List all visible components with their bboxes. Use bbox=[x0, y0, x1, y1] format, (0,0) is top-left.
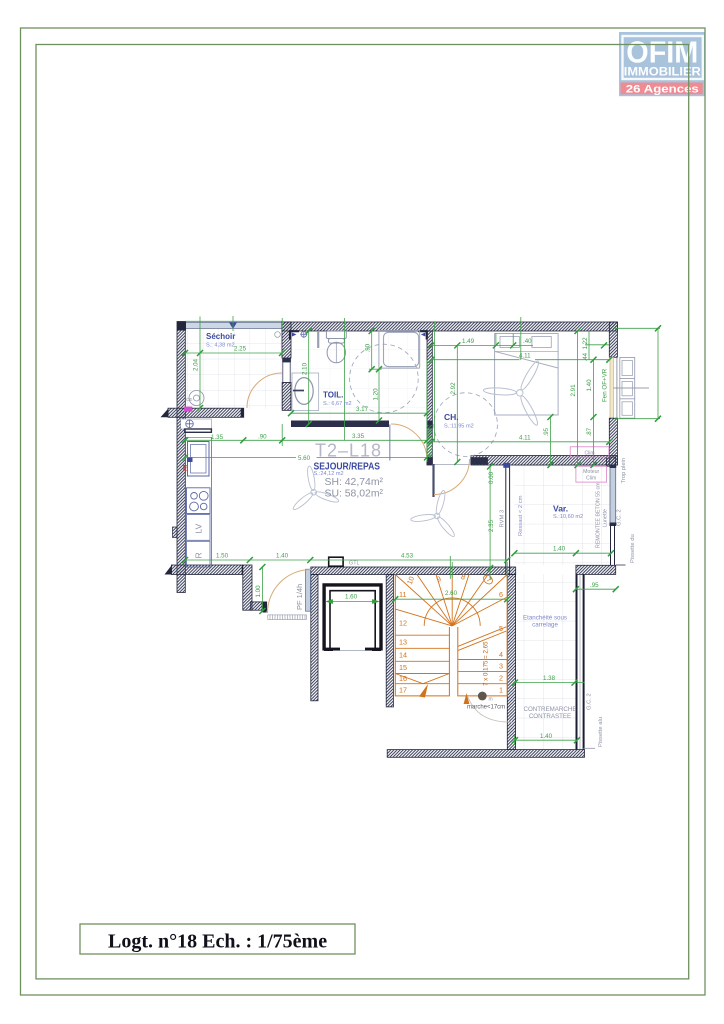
svg-text:1: 1 bbox=[499, 686, 503, 695]
svg-text:CE: CE bbox=[186, 397, 192, 402]
svg-text:RVM 3: RVM 3 bbox=[500, 510, 506, 528]
svg-text:S.:10,60 m2: S.:10,60 m2 bbox=[553, 514, 583, 520]
svg-text:Pissette alu: Pissette alu bbox=[598, 717, 604, 747]
svg-text:0.00: 0.00 bbox=[488, 471, 495, 484]
svg-text:26 Agences: 26 Agences bbox=[626, 84, 699, 96]
svg-text:Clim: Clim bbox=[585, 451, 595, 457]
svg-text:1.38: 1.38 bbox=[543, 675, 556, 682]
svg-text:Clim: Clim bbox=[586, 476, 596, 482]
svg-text:1.22: 1.22 bbox=[582, 337, 589, 350]
svg-text:.95: .95 bbox=[543, 427, 550, 436]
svg-text:TOIL.: TOIL. bbox=[323, 391, 343, 400]
svg-text:14: 14 bbox=[399, 651, 407, 660]
svg-text:SU: 58,02m²: SU: 58,02m² bbox=[325, 489, 384, 500]
svg-text:2.10: 2.10 bbox=[302, 362, 309, 375]
svg-text:Moteur: Moteur bbox=[583, 469, 599, 475]
svg-text:2.04: 2.04 bbox=[193, 358, 200, 371]
svg-text:1.35: 1.35 bbox=[211, 434, 224, 441]
svg-text:REMONTEE BETON 55 cm: REMONTEE BETON 55 cm bbox=[596, 482, 602, 548]
svg-text:Lunette: Lunette bbox=[603, 509, 609, 527]
svg-text:GTL: GTL bbox=[349, 561, 359, 567]
svg-text:E: E bbox=[183, 464, 188, 473]
svg-text:carrelage: carrelage bbox=[532, 622, 558, 629]
svg-text:1.50: 1.50 bbox=[216, 553, 229, 560]
svg-text:LV: LV bbox=[194, 523, 204, 533]
svg-text:Logt. n°18 Ech. : 1/75ème: Logt. n°18 Ech. : 1/75ème bbox=[108, 931, 327, 953]
svg-text:.87: .87 bbox=[586, 427, 593, 436]
svg-text:1.40: 1.40 bbox=[276, 553, 289, 560]
svg-text:Pissette du: Pissette du bbox=[630, 534, 636, 563]
svg-text:4: 4 bbox=[499, 650, 503, 659]
svg-text:T2–L18: T2–L18 bbox=[315, 441, 382, 461]
svg-text:2.25: 2.25 bbox=[234, 346, 247, 353]
svg-text:3.17: 3.17 bbox=[356, 406, 369, 413]
svg-text:Trop plein: Trop plein bbox=[621, 458, 627, 484]
svg-text:Séchoir: Séchoir bbox=[206, 332, 235, 341]
svg-text:.40: .40 bbox=[523, 338, 532, 345]
svg-text:12: 12 bbox=[399, 619, 407, 628]
svg-text:Fen OF+VR: Fen OF+VR bbox=[602, 368, 609, 402]
svg-text:2.91: 2.91 bbox=[570, 384, 577, 397]
svg-text:2.60: 2.60 bbox=[445, 590, 458, 597]
svg-text:6: 6 bbox=[499, 590, 503, 599]
svg-text:5.60: 5.60 bbox=[298, 455, 311, 462]
svg-text:CH.: CH. bbox=[444, 412, 459, 422]
svg-text:.95: .95 bbox=[590, 582, 599, 589]
svg-text:15: 15 bbox=[399, 663, 407, 672]
svg-text:.90: .90 bbox=[365, 343, 372, 352]
svg-text:m: m bbox=[489, 697, 493, 703]
svg-text:marche<17cm: marche<17cm bbox=[467, 705, 505, 711]
svg-text:5: 5 bbox=[499, 624, 503, 633]
svg-text:4.11: 4.11 bbox=[519, 434, 531, 441]
svg-text:Ressaut < 2 cm: Ressaut < 2 cm bbox=[518, 495, 524, 536]
svg-text:1.00: 1.00 bbox=[255, 585, 262, 598]
svg-text:CONTRASTEE: CONTRASTEE bbox=[529, 713, 571, 720]
svg-text:17: 17 bbox=[399, 686, 407, 695]
svg-text:PF 1/4h: PF 1/4h bbox=[295, 584, 304, 610]
svg-text:.90: .90 bbox=[258, 433, 267, 440]
svg-text:1.60: 1.60 bbox=[345, 594, 358, 601]
svg-text:CONTREMARCHE: CONTREMARCHE bbox=[524, 706, 577, 713]
svg-text:1.40: 1.40 bbox=[586, 379, 593, 392]
svg-text:2.35: 2.35 bbox=[488, 519, 495, 532]
svg-text:4.11: 4.11 bbox=[519, 352, 531, 359]
svg-text:11: 11 bbox=[399, 590, 406, 599]
svg-text:.44: .44 bbox=[582, 352, 589, 361]
svg-text:G.C. 2: G.C. 2 bbox=[587, 693, 593, 710]
svg-text:4.53: 4.53 bbox=[401, 553, 414, 560]
svg-text:13: 13 bbox=[399, 638, 407, 647]
svg-text:2: 2 bbox=[499, 674, 503, 683]
svg-text:SH: 42,74m²: SH: 42,74m² bbox=[325, 477, 384, 488]
svg-text:Etanchéité sous: Etanchéité sous bbox=[523, 615, 567, 622]
svg-text:2.92: 2.92 bbox=[450, 382, 457, 395]
svg-text:R: R bbox=[194, 552, 204, 558]
svg-text:S.: 6,67 m2: S.: 6,67 m2 bbox=[323, 401, 352, 407]
svg-text:16: 16 bbox=[399, 674, 407, 683]
svg-text:7 x 0,175 = 2,65: 7 x 0,175 = 2,65 bbox=[483, 641, 490, 686]
svg-text:1.40: 1.40 bbox=[540, 733, 553, 740]
svg-text:1.40: 1.40 bbox=[553, 546, 566, 553]
svg-text:S.: 4,38 m2: S.: 4,38 m2 bbox=[206, 343, 235, 349]
svg-text:1.20: 1.20 bbox=[373, 388, 380, 401]
svg-text:3: 3 bbox=[499, 662, 503, 671]
svg-text:S.:11,95 m2: S.:11,95 m2 bbox=[444, 424, 474, 430]
svg-text:Var.: Var. bbox=[553, 504, 568, 514]
svg-text:IMMOBILIER: IMMOBILIER bbox=[624, 65, 701, 79]
svg-text:3.35: 3.35 bbox=[352, 433, 365, 440]
svg-text:1.49: 1.49 bbox=[462, 338, 475, 345]
svg-text:G.C. 2: G.C. 2 bbox=[617, 509, 623, 526]
